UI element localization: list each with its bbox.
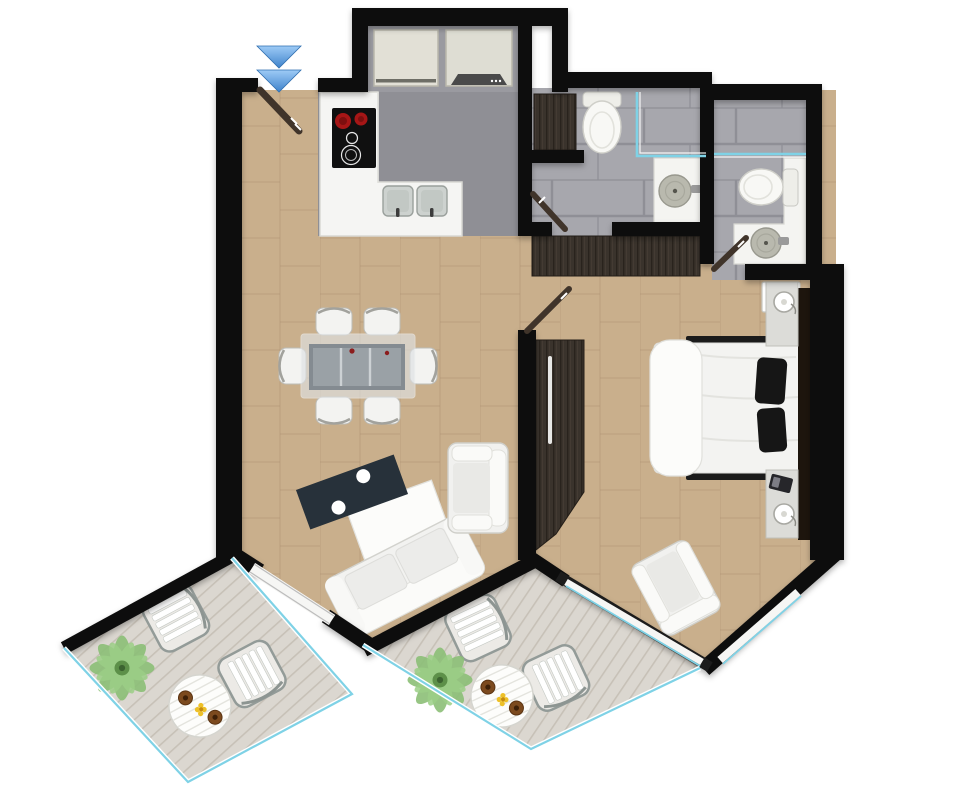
headboard <box>798 288 812 540</box>
vanity-1 <box>654 158 706 224</box>
cooktop <box>332 108 376 168</box>
pillow <box>756 407 787 453</box>
tall-cabinet <box>534 94 576 150</box>
hall-wardrobe <box>532 236 700 276</box>
faucet-2 <box>778 237 789 245</box>
toilet-2 <box>739 169 798 206</box>
oven-vent <box>451 74 507 85</box>
pillow <box>754 357 787 405</box>
duvet-fold <box>650 340 702 476</box>
floor-plan <box>0 0 960 800</box>
toilet-1 <box>583 92 621 153</box>
bed <box>650 336 804 480</box>
armchair-living <box>448 443 508 533</box>
plant-icon <box>90 636 155 701</box>
fridge <box>374 30 438 86</box>
floor-plan-page <box>0 0 960 800</box>
wardrobe-handle <box>548 356 552 444</box>
